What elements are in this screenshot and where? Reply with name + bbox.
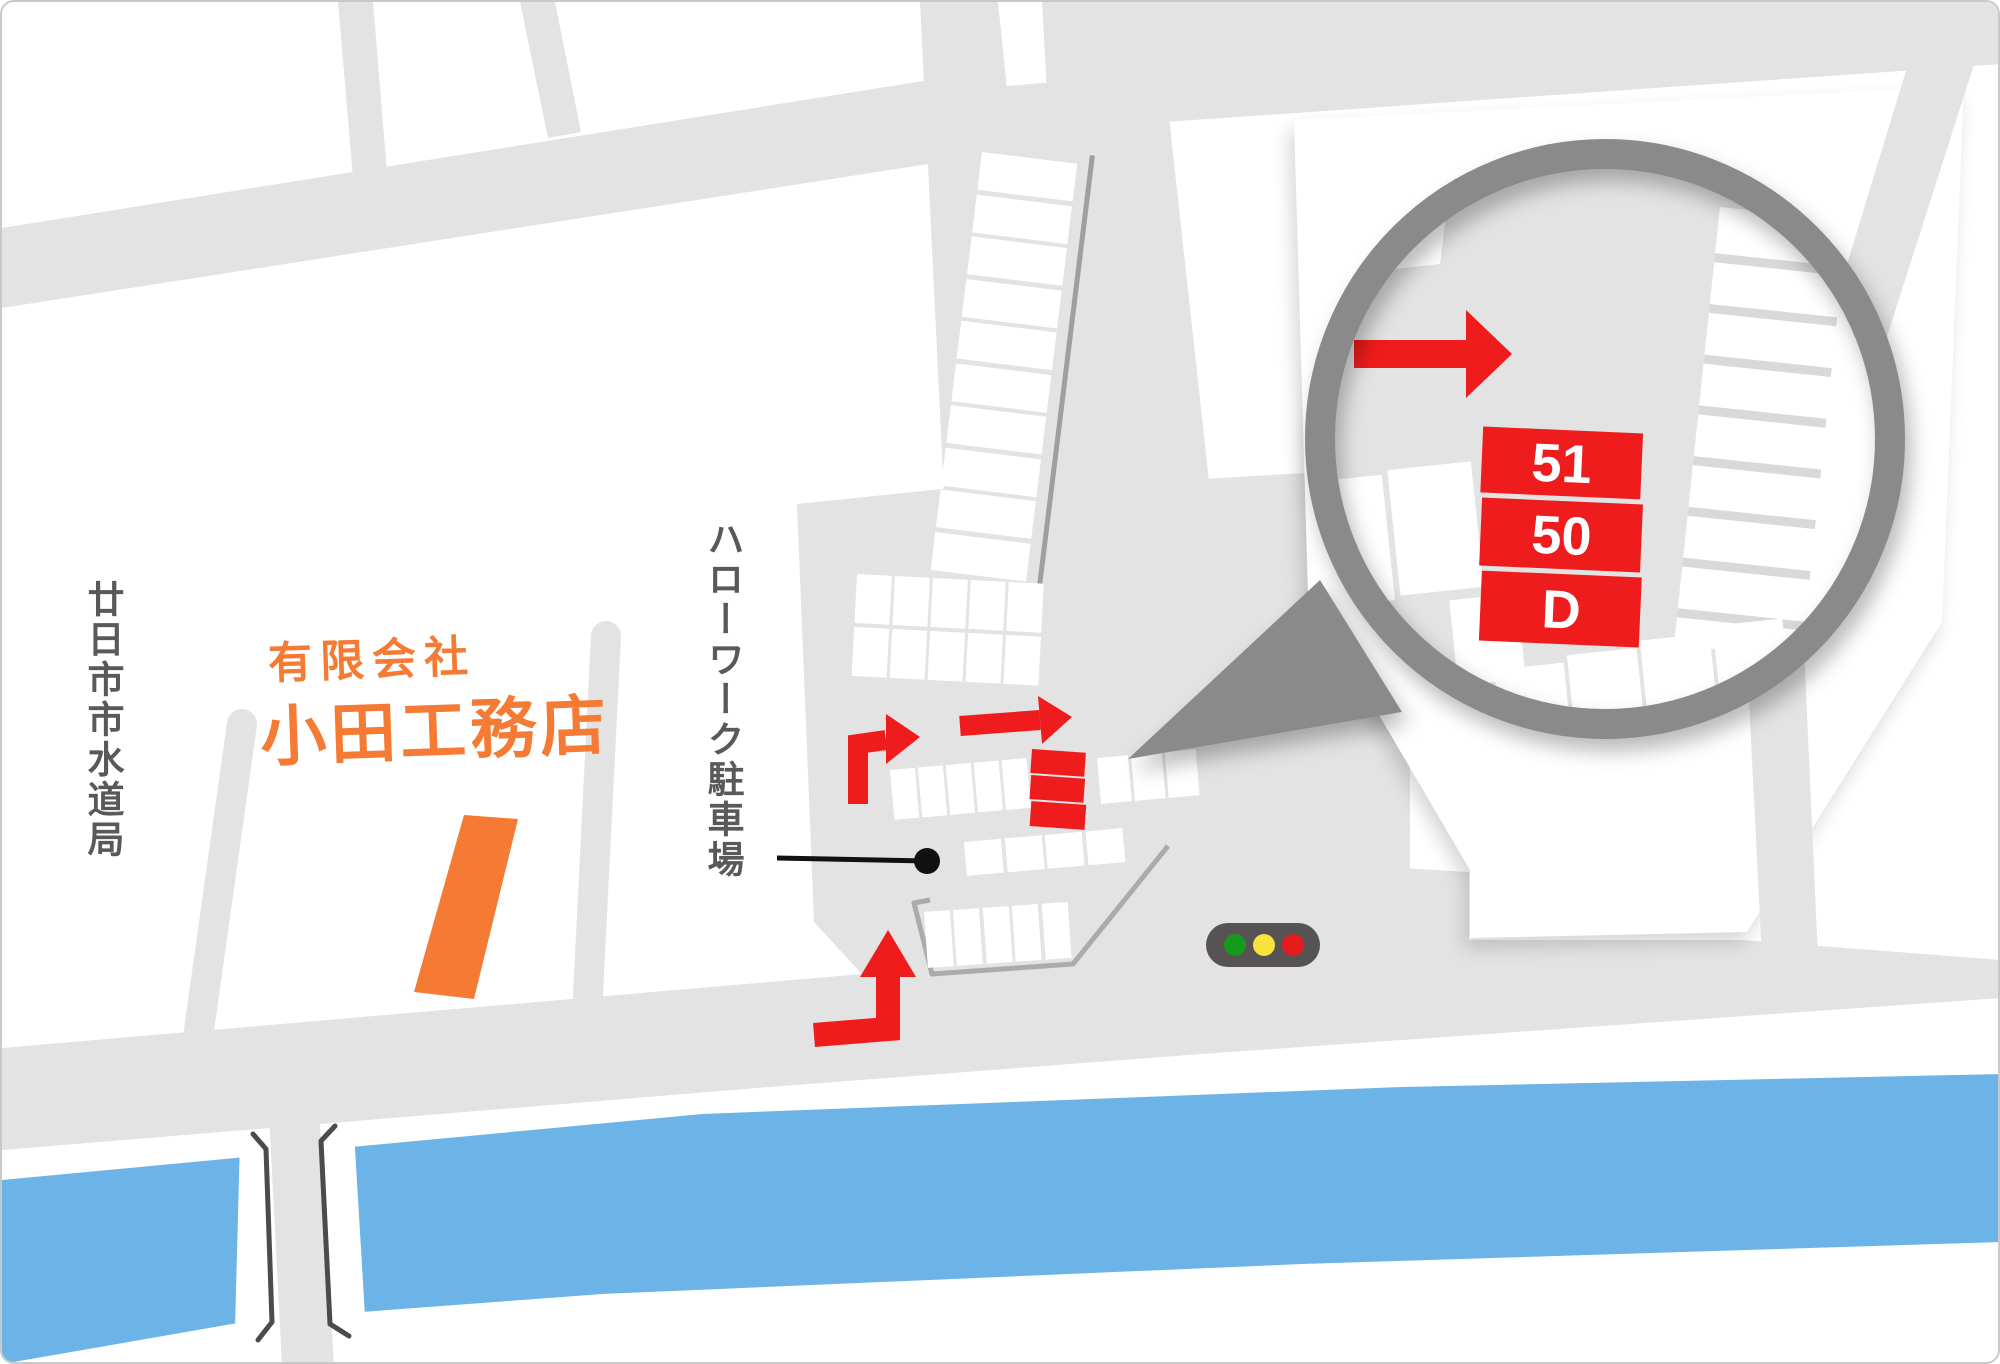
stall-50-label: 50 (1530, 505, 1593, 568)
callout-line (777, 858, 927, 861)
stall-d-label: D (1540, 579, 1582, 641)
road-stub-b (520, 2, 581, 138)
callout-dot (914, 848, 940, 874)
traffic-light (1206, 923, 1320, 967)
road-stub-a (338, 2, 387, 178)
lens-target-stalls: 51 50 D (1474, 426, 1648, 647)
company-name: 小田工務店 (258, 672, 611, 780)
stall-row-entrance (924, 902, 1072, 968)
traffic-light-green (1224, 934, 1246, 956)
stall-row-c (1097, 749, 1200, 803)
traffic-light-yellow (1253, 934, 1275, 956)
company-building (414, 815, 518, 999)
stall-51-label: 51 (1530, 433, 1593, 496)
parking-lot-label: ハローワーク駐車場 (704, 520, 741, 880)
waterworks-label: 廿日市市水道局 (84, 580, 121, 860)
road-diagonal-topleft (2, 78, 954, 308)
access-map: 51 50 D 廿日市市水道局 ハローワーク駐車場 有限会社 小田工務店 (0, 0, 2000, 1364)
traffic-light-red (1282, 934, 1304, 956)
alley-left (199, 724, 242, 1030)
target-stalls-map (1027, 749, 1090, 830)
